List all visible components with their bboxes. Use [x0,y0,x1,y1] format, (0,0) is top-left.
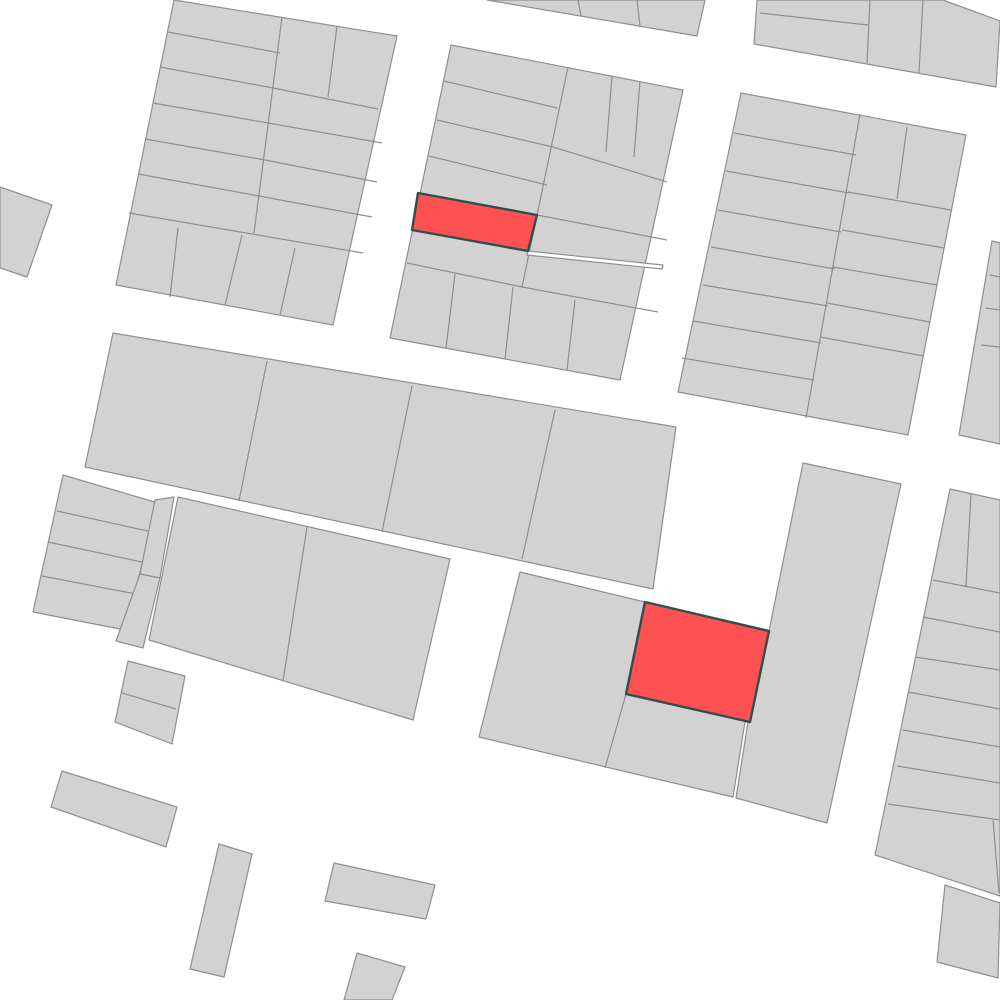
block-top-right[interactable] [678,93,966,435]
parcel-bottom-right[interactable] [937,885,1000,978]
block-top-strip[interactable] [487,0,705,36]
parcel-map-svg[interactable] [0,0,1000,1000]
rect-bottom-edge[interactable] [344,953,405,1000]
rect-center-low[interactable] [325,863,435,919]
block-top-right-mini[interactable] [754,0,1000,87]
rect-tall-narrow[interactable] [190,844,252,977]
sliver-right-top[interactable] [959,241,1000,444]
rect-left-low[interactable] [51,771,177,847]
block-small-pair[interactable] [115,661,185,744]
block-right-column[interactable] [875,489,1000,896]
map-canvas[interactable] [0,0,1000,1000]
wedge-far-left[interactable] [0,187,52,277]
